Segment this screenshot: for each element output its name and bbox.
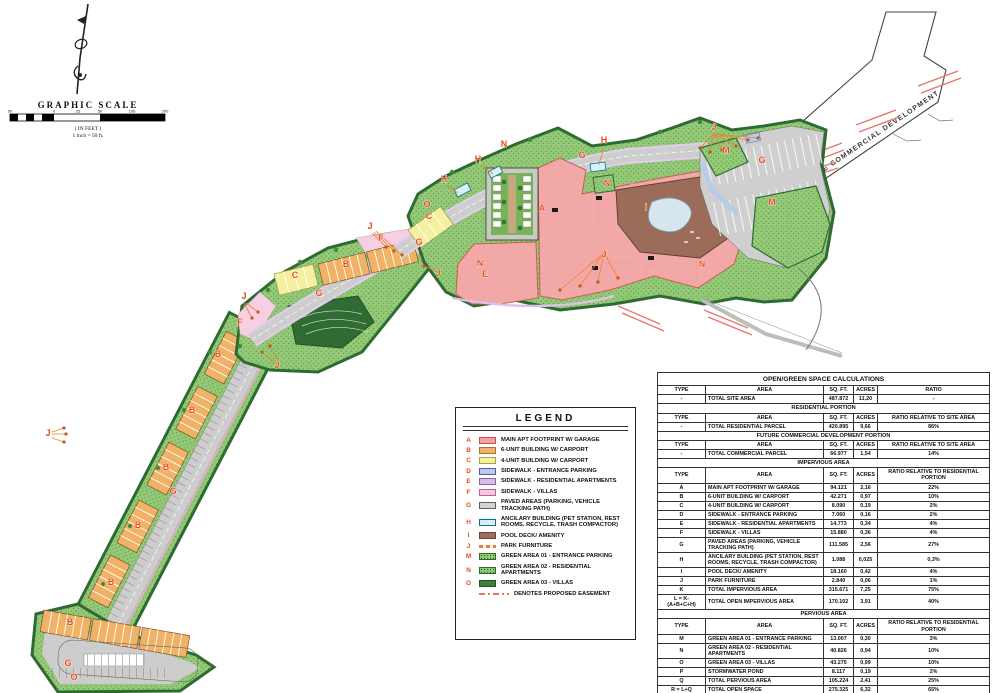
legend-swatch-icon xyxy=(479,437,496,444)
table-col-header: AREA xyxy=(706,413,824,422)
table-col-header: SQ. FT. xyxy=(824,413,854,422)
plan-label-G: G xyxy=(415,237,422,247)
table-col-header: AREA xyxy=(706,386,824,395)
site-plan-sheet: GRAPHIC SCALE 5002550100200 ( IN FEET ) … xyxy=(0,0,992,693)
table-cell: 6,32 xyxy=(854,685,878,693)
table-cell: PAVED AREAS (PARKING, VEHICLE TRACKING P… xyxy=(706,537,824,552)
plan-label-C: C xyxy=(292,270,299,280)
table-row: B6-UNIT BUILDING W/ CARPORT42.2710,9710% xyxy=(658,492,990,501)
plan-label-J: J xyxy=(274,360,279,370)
table-cell: 8.117 xyxy=(824,667,854,676)
table-section-row: FUTURE COMMERCIAL DEVELOPMENT PORTION xyxy=(658,431,990,440)
plan-label-F: F xyxy=(237,317,243,327)
table-cell: 27% xyxy=(878,537,990,552)
table-cell: 2% xyxy=(878,667,990,676)
table-cell: 0,99 xyxy=(854,658,878,667)
plan-label-J: J xyxy=(435,268,440,278)
north-arrow-icon xyxy=(74,4,88,94)
plan-label-G: G xyxy=(758,155,765,165)
table-cell: 0,16 xyxy=(854,510,878,519)
table-cell: A xyxy=(658,483,706,492)
plan-label-B: B xyxy=(108,577,115,587)
table-cell: TOTAL COMMERCIAL PARCEL xyxy=(706,450,824,459)
legend-swatch-icon xyxy=(479,468,496,475)
legend-swatch-icon xyxy=(479,545,496,548)
legend-item-G: GPAVED AREAS (PARKING, VEHICLE TRACKING … xyxy=(463,499,628,512)
legend-title: LEGEND xyxy=(463,413,628,424)
legend-key: J xyxy=(463,543,474,550)
table-cell: 0,34 xyxy=(854,519,878,528)
table-row: QTOTAL PERVIOUS AREA105.2242,4125% xyxy=(658,676,990,685)
table-cell: 0,19 xyxy=(854,667,878,676)
table-header-row: TYPEAREASQ. FT.ACRESRATIO RELATIVE TO SI… xyxy=(658,413,990,422)
table-col-header: ACRES xyxy=(854,413,878,422)
table-cell: 2,56 xyxy=(854,537,878,552)
table-cell: 94.121 xyxy=(824,483,854,492)
legend-item-label: GREEN AREA 01 - ENTRANCE PARKING xyxy=(501,553,613,560)
legend-item-label: SIDEWALK - VILLAS xyxy=(501,489,557,496)
legend-item-M: MGREEN AREA 01 - ENTRANCE PARKING xyxy=(463,553,628,560)
table-section-row: IMPERVIOUS AREA xyxy=(658,459,990,468)
plan-label-B: B xyxy=(67,617,74,627)
table-cell: TOTAL PERVIOUS AREA xyxy=(706,676,824,685)
scale-tick: 50 xyxy=(98,109,103,114)
plan-label-B: B xyxy=(135,520,142,530)
table-cell: 9,66 xyxy=(854,422,878,431)
legend-key: F xyxy=(463,489,474,496)
legend-item-O: OGREEN AREA 03 - VILLAS xyxy=(463,580,628,587)
table-col-header: ACRES xyxy=(854,386,878,395)
table-cell: 1% xyxy=(878,577,990,586)
plan-label-B: B xyxy=(215,349,222,359)
plan-label-B: B xyxy=(163,462,170,472)
legend-swatch-icon xyxy=(479,489,496,496)
table-cell: 2.840 xyxy=(824,577,854,586)
table-cell: PARK FURNITURE xyxy=(706,577,824,586)
scale-ratio-note: 1 inch = 50 ft. xyxy=(72,132,104,139)
legend-swatch-icon xyxy=(479,593,509,595)
table-cell: TOTAL SITE AREA xyxy=(706,395,824,404)
table-cell: 10% xyxy=(878,492,990,501)
table-row: JPARK FURNITURE2.8400,061% xyxy=(658,577,990,586)
plan-label-N: N xyxy=(699,259,706,269)
legend-key: N xyxy=(463,567,474,574)
legend-key: I xyxy=(463,532,474,539)
plan-label-J: J xyxy=(601,249,606,259)
legend-item-label: SIDEWALK - ENTRANCE PARKING xyxy=(501,468,597,475)
table-col-header: SQ. FT. xyxy=(824,386,854,395)
plan-label-J: J xyxy=(367,221,372,231)
legend-item-F: FSIDEWALK - VILLAS xyxy=(463,489,628,496)
table-cell: K xyxy=(658,586,706,595)
table-col-header: TYPE xyxy=(658,441,706,450)
plan-label-O: O xyxy=(70,672,77,682)
table-cell: - xyxy=(658,422,706,431)
table-cell: 2,16 xyxy=(854,483,878,492)
table-row: AMAIN APT FOOTPRINT W/ GARAGE94.1212,162… xyxy=(658,483,990,492)
table-col-header: TYPE xyxy=(658,468,706,483)
scale-tick: 25 xyxy=(76,109,81,114)
legend-swatch-icon xyxy=(479,580,496,587)
open-green-space-calculations-table: OPEN/GREEN SPACE CALCULATIONSTYPEAREASQ.… xyxy=(657,372,990,693)
table-cell: R = L+Q xyxy=(658,685,706,693)
table-section-row: RESIDENTIAL PORTION xyxy=(658,404,990,413)
legend-item-label: PARK FURNITURE xyxy=(501,543,552,550)
table-col-header: RATIO RELATIVE TO SITE AREA xyxy=(878,441,990,450)
table-cell: POOL DECK/ AMENITY xyxy=(706,567,824,576)
table-cell: MAIN APT FOOTPRINT W/ GARAGE xyxy=(706,483,824,492)
table-cell: 1,54 xyxy=(854,450,878,459)
legend-item-label: MAIN APT FOOTPRINT W/ GARAGE xyxy=(501,437,600,444)
table-cell: J xyxy=(658,577,706,586)
table-cell: 8.090 xyxy=(824,501,854,510)
table-col-header: AREA xyxy=(706,441,824,450)
plan-label-M: M xyxy=(768,197,776,207)
table-row: IPOOL DECK/ AMENITY18.1600,424% xyxy=(658,567,990,576)
table-col-header: RATIO xyxy=(878,386,990,395)
legend-item-label: 4-UNIT BUILDING W/ CARPORT xyxy=(501,458,588,465)
plan-label-G: G xyxy=(64,658,71,668)
plan-label-G: G xyxy=(169,486,176,496)
table-cell: TOTAL RESIDENTIAL PARCEL xyxy=(706,422,824,431)
plan-label-C: C xyxy=(426,211,433,221)
plan-label-E: E xyxy=(482,269,488,279)
table-cell: 10% xyxy=(878,643,990,658)
legend-item-H: HANCILARY BUILDING (PET STATION, REST RO… xyxy=(463,516,628,529)
legend-swatch-icon xyxy=(479,519,496,526)
table-row: -TOTAL COMMERCIAL PARCEL66.9771,5414% xyxy=(658,450,990,459)
table-cell: 40.826 xyxy=(824,643,854,658)
legend-item-J: JPARK FURNITURE xyxy=(463,543,628,550)
table-cell: 2% xyxy=(878,501,990,510)
table-row: GPAVED AREAS (PARKING, VEHICLE TRACKING … xyxy=(658,537,990,552)
table-row: L = K-(A+B+C+H)TOTAL OPEN IMPERVIOUS ARE… xyxy=(658,595,990,610)
plan-label-N: N xyxy=(477,258,484,268)
table-cell: 4% xyxy=(878,519,990,528)
table-cell: 315.671 xyxy=(824,586,854,595)
legend-swatch-icon xyxy=(479,447,496,454)
plan-label-M: M xyxy=(722,145,730,155)
table-cell: 4% xyxy=(878,567,990,576)
legend-swatch-icon xyxy=(479,532,496,539)
table-cell: 18.160 xyxy=(824,567,854,576)
legend-item-C: C4-UNIT BUILDING W/ CARPORT xyxy=(463,457,628,464)
table-cell: 0,97 xyxy=(854,492,878,501)
table-cell: 75% xyxy=(878,586,990,595)
table-cell: SIDEWALK - ENTRANCE PARKING xyxy=(706,510,824,519)
plan-label-N: N xyxy=(501,139,508,149)
table-row: -TOTAL SITE AREA487.87211,20- xyxy=(658,395,990,404)
table-col-header: RATIO RELATIVE TO RESIDENTIAL PORTION xyxy=(878,619,990,634)
table-row: -TOTAL RESIDENTIAL PARCEL420.8959,6686% xyxy=(658,422,990,431)
table-cell: GREEN AREA 02 - RESIDENTIAL APARTMENTS xyxy=(706,643,824,658)
legend-item-label: PAVED AREAS (PARKING, VEHICLE TRACKING P… xyxy=(501,499,628,512)
table-section-header: PERVIOUS AREA xyxy=(658,610,990,619)
table-cell: 13.007 xyxy=(824,634,854,643)
table-cell: H xyxy=(658,552,706,567)
legend-item-label: GREEN AREA 02 - RESIDENTIAL APARTMENTS xyxy=(501,564,628,577)
table-cell: 2,41 xyxy=(854,676,878,685)
plan-label-O: O xyxy=(423,199,430,209)
table-col-header: SQ. FT. xyxy=(824,619,854,634)
table-cell: - xyxy=(658,450,706,459)
table-cell: - xyxy=(878,395,990,404)
legend-swatch-icon xyxy=(479,457,496,464)
table-cell: GREEN AREA 01 - ENTRANCE PARKING xyxy=(706,634,824,643)
table-col-header: ACRES xyxy=(854,619,878,634)
scale-tick: 200 xyxy=(162,109,169,114)
plan-label-I: I xyxy=(645,202,648,212)
legend-item-A: AMAIN APT FOOTPRINT W/ GARAGE xyxy=(463,437,628,444)
table-cell: G xyxy=(658,537,706,552)
table-cell: TOTAL OPEN IMPERVIOUS AREA xyxy=(706,595,824,610)
table-header-row: TYPEAREASQ. FT.ACRESRATIO RELATIVE TO SI… xyxy=(658,441,990,450)
legend-key: B xyxy=(463,447,474,454)
table-row: ESIDEWALK - RESIDENTIAL APARTMENTS14.773… xyxy=(658,519,990,528)
scale-tick: 100 xyxy=(129,109,136,114)
table-row: C4-UNIT BUILDING W/ CARPORT8.0900,192% xyxy=(658,501,990,510)
table-cell: 4-UNIT BUILDING W/ CARPORT xyxy=(706,501,824,510)
table-cell: 6-UNIT BUILDING W/ CARPORT xyxy=(706,492,824,501)
table-col-header: ACRES xyxy=(854,441,878,450)
table-col-header: AREA xyxy=(706,619,824,634)
legend-key: O xyxy=(463,580,474,587)
table-cell: 111.585 xyxy=(824,537,854,552)
legend-key: G xyxy=(463,502,474,509)
table-cell: N xyxy=(658,643,706,658)
table-row: R = L+QTOTAL OPEN SPACE275.3256,3265% xyxy=(658,685,990,693)
table-cell: 14% xyxy=(878,450,990,459)
table-cell: 0,36 xyxy=(854,528,878,537)
table-cell: 1.088 xyxy=(824,552,854,567)
table-cell: 3,91 xyxy=(854,595,878,610)
legend-swatch-icon xyxy=(479,567,496,574)
table-cell: 2% xyxy=(878,510,990,519)
legend-item-I: IPOOL DECK/ AMENITY xyxy=(463,532,628,539)
table-col-header: SQ. FT. xyxy=(824,441,854,450)
plan-label-G: G xyxy=(315,288,322,298)
legend-swatch-icon xyxy=(479,478,496,485)
table-col-header: TYPE xyxy=(658,619,706,634)
plan-label-B: B xyxy=(189,405,196,415)
table-header-row: TYPEAREASQ. FT.ACRESRATIO RELATIVE TO RE… xyxy=(658,468,990,483)
legend-item-easement: DENOTES PROPOSED EASEMENT xyxy=(463,591,628,598)
table-col-header: ACRES xyxy=(854,468,878,483)
legend-key: C xyxy=(463,457,474,464)
table-section-header: IMPERVIOUS AREA xyxy=(658,459,990,468)
table-cell: 0,06 xyxy=(854,577,878,586)
legend-box: LEGEND AMAIN APT FOOTPRINT W/ GARAGEB6-U… xyxy=(455,407,636,640)
table-row: OGREEN AREA 03 - VILLAS43.2750,9910% xyxy=(658,658,990,667)
table-row: PSTORMWATER POND8.1170,192% xyxy=(658,667,990,676)
table-col-header: TYPE xyxy=(658,386,706,395)
legend-divider xyxy=(463,426,628,431)
table-cell: 170.102 xyxy=(824,595,854,610)
plan-label-F: F xyxy=(378,233,384,243)
plan-label-J: J xyxy=(711,122,716,132)
plan-label-H: H xyxy=(441,174,448,184)
table-section-header: RESIDENTIAL PORTION xyxy=(658,404,990,413)
legend-swatch-icon xyxy=(479,502,496,509)
plan-label-A: A xyxy=(539,203,546,213)
legend-item-D: DSIDEWALK - ENTRANCE PARKING xyxy=(463,468,628,475)
table-cell: - xyxy=(658,395,706,404)
table-cell: ANCILARY BUILDING (PET STATION, REST ROO… xyxy=(706,552,824,567)
legend-item-label: POOL DECK/ AMENITY xyxy=(501,533,564,540)
table-cell: 3% xyxy=(878,634,990,643)
legend-item-label: DENOTES PROPOSED EASEMENT xyxy=(514,591,610,598)
legend-item-label: ANCILARY BUILDING (PET STATION, REST ROO… xyxy=(501,516,628,529)
table-cell: F xyxy=(658,528,706,537)
table-cell: 10% xyxy=(878,658,990,667)
table-header-row: TYPEAREASQ. FT.ACRESRATIO RELATIVE TO RE… xyxy=(658,619,990,634)
table-cell: 487.872 xyxy=(824,395,854,404)
legend-swatch-icon xyxy=(479,553,496,560)
plan-label-J: J xyxy=(241,291,246,301)
table-cell: SIDEWALK - RESIDENTIAL APARTMENTS xyxy=(706,519,824,528)
table-title-row: OPEN/GREEN SPACE CALCULATIONS xyxy=(658,373,990,386)
table-cell: GREEN AREA 03 - VILLAS xyxy=(706,658,824,667)
table-cell: 0,42 xyxy=(854,567,878,576)
table-header-row: TYPEAREASQ. FT.ACRESRATIO xyxy=(658,386,990,395)
table-cell: 22% xyxy=(878,483,990,492)
table-col-header: SQ. FT. xyxy=(824,468,854,483)
table-cell: 105.224 xyxy=(824,676,854,685)
plan-label-G: G xyxy=(578,150,585,160)
table-cell: E xyxy=(658,519,706,528)
table-cell: 43.275 xyxy=(824,658,854,667)
table-cell: P xyxy=(658,667,706,676)
table-cell: D xyxy=(658,510,706,519)
table-cell: 7,25 xyxy=(854,586,878,595)
table-cell: M xyxy=(658,634,706,643)
table-cell: 11,20 xyxy=(854,395,878,404)
legend-item-label: GREEN AREA 03 - VILLAS xyxy=(501,580,573,587)
table-cell: 86% xyxy=(878,422,990,431)
table-cell: 66.977 xyxy=(824,450,854,459)
legend-item-label: SIDEWALK - RESIDENTIAL APARTMENTS xyxy=(501,478,617,485)
table-cell: 420.895 xyxy=(824,422,854,431)
table-cell: 15.880 xyxy=(824,528,854,537)
table-row: HANCILARY BUILDING (PET STATION, REST RO… xyxy=(658,552,990,567)
plan-label-H: H xyxy=(475,154,482,164)
table-cell: SIDEWALK - VILLAS xyxy=(706,528,824,537)
table-row: MGREEN AREA 01 - ENTRANCE PARKING13.0070… xyxy=(658,634,990,643)
table-cell: 0,94 xyxy=(854,643,878,658)
table-row: KTOTAL IMPERVIOUS AREA315.6717,2575% xyxy=(658,586,990,595)
table-col-header: RATIO RELATIVE TO SITE AREA xyxy=(878,413,990,422)
table-cell: STORMWATER POND xyxy=(706,667,824,676)
graphic-scale: GRAPHIC SCALE 5002550100200 ( IN FEET ) … xyxy=(8,100,169,139)
table-cell: Q xyxy=(658,676,706,685)
table-cell: 0,19 xyxy=(854,501,878,510)
table-cell: 25% xyxy=(878,676,990,685)
table-row: DSIDEWALK - ENTRANCE PARKING7.0600,162% xyxy=(658,510,990,519)
table-section-header: FUTURE COMMERCIAL DEVELOPMENT PORTION xyxy=(658,431,990,440)
table-col-header: RATIO RELATIVE TO RESIDENTIAL PORTION xyxy=(878,468,990,483)
table-col-header: AREA xyxy=(706,468,824,483)
plan-label-N: N xyxy=(604,178,611,188)
table-cell: B xyxy=(658,492,706,501)
table-cell: I xyxy=(658,567,706,576)
easement-lines-south xyxy=(618,306,752,335)
table-cell: 7.060 xyxy=(824,510,854,519)
table-cell: L = K-(A+B+C+H) xyxy=(658,595,706,610)
table-col-header: TYPE xyxy=(658,413,706,422)
courtyard-block xyxy=(486,168,538,240)
table-title: OPEN/GREEN SPACE CALCULATIONS xyxy=(658,373,990,386)
table-cell: 42.271 xyxy=(824,492,854,501)
table-row: NGREEN AREA 02 - RESIDENTIAL APARTMENTS4… xyxy=(658,643,990,658)
table-cell: 4% xyxy=(878,528,990,537)
table-cell: C xyxy=(658,501,706,510)
table-cell: O xyxy=(658,658,706,667)
table-cell: 65% xyxy=(878,685,990,693)
table-cell: 0,30 xyxy=(854,634,878,643)
plan-label-H: H xyxy=(601,135,608,145)
legend-key: A xyxy=(463,437,474,444)
legend-key: E xyxy=(463,478,474,485)
table-cell: TOTAL IMPERVIOUS AREA xyxy=(706,586,824,595)
legend-item-N: NGREEN AREA 02 - RESIDENTIAL APARTMENTS xyxy=(463,564,628,577)
table-row: FSIDEWALK - VILLAS15.8800,364% xyxy=(658,528,990,537)
plan-label-B: B xyxy=(343,259,350,269)
legend-key: H xyxy=(463,519,474,526)
table-cell: 40% xyxy=(878,595,990,610)
scale-tick: 50 xyxy=(8,109,13,114)
table-cell: 0,3% xyxy=(878,552,990,567)
table-cell: 0,025 xyxy=(854,552,878,567)
legend-key: D xyxy=(463,468,474,475)
table-section-row: PERVIOUS AREA xyxy=(658,610,990,619)
plan-label-J: J xyxy=(45,428,50,438)
table-cell: TOTAL OPEN SPACE xyxy=(706,685,824,693)
legend-item-label: 6-UNIT BUILDING W/ CARPORT xyxy=(501,447,588,454)
table-cell: 14.773 xyxy=(824,519,854,528)
legend-item-E: ESIDEWALK - RESIDENTIAL APARTMENTS xyxy=(463,478,628,485)
legend-key: M xyxy=(463,553,474,560)
scale-units-note: ( IN FEET ) xyxy=(75,125,102,132)
legend-item-B: B6-UNIT BUILDING W/ CARPORT xyxy=(463,447,628,454)
table-cell: 275.325 xyxy=(824,685,854,693)
